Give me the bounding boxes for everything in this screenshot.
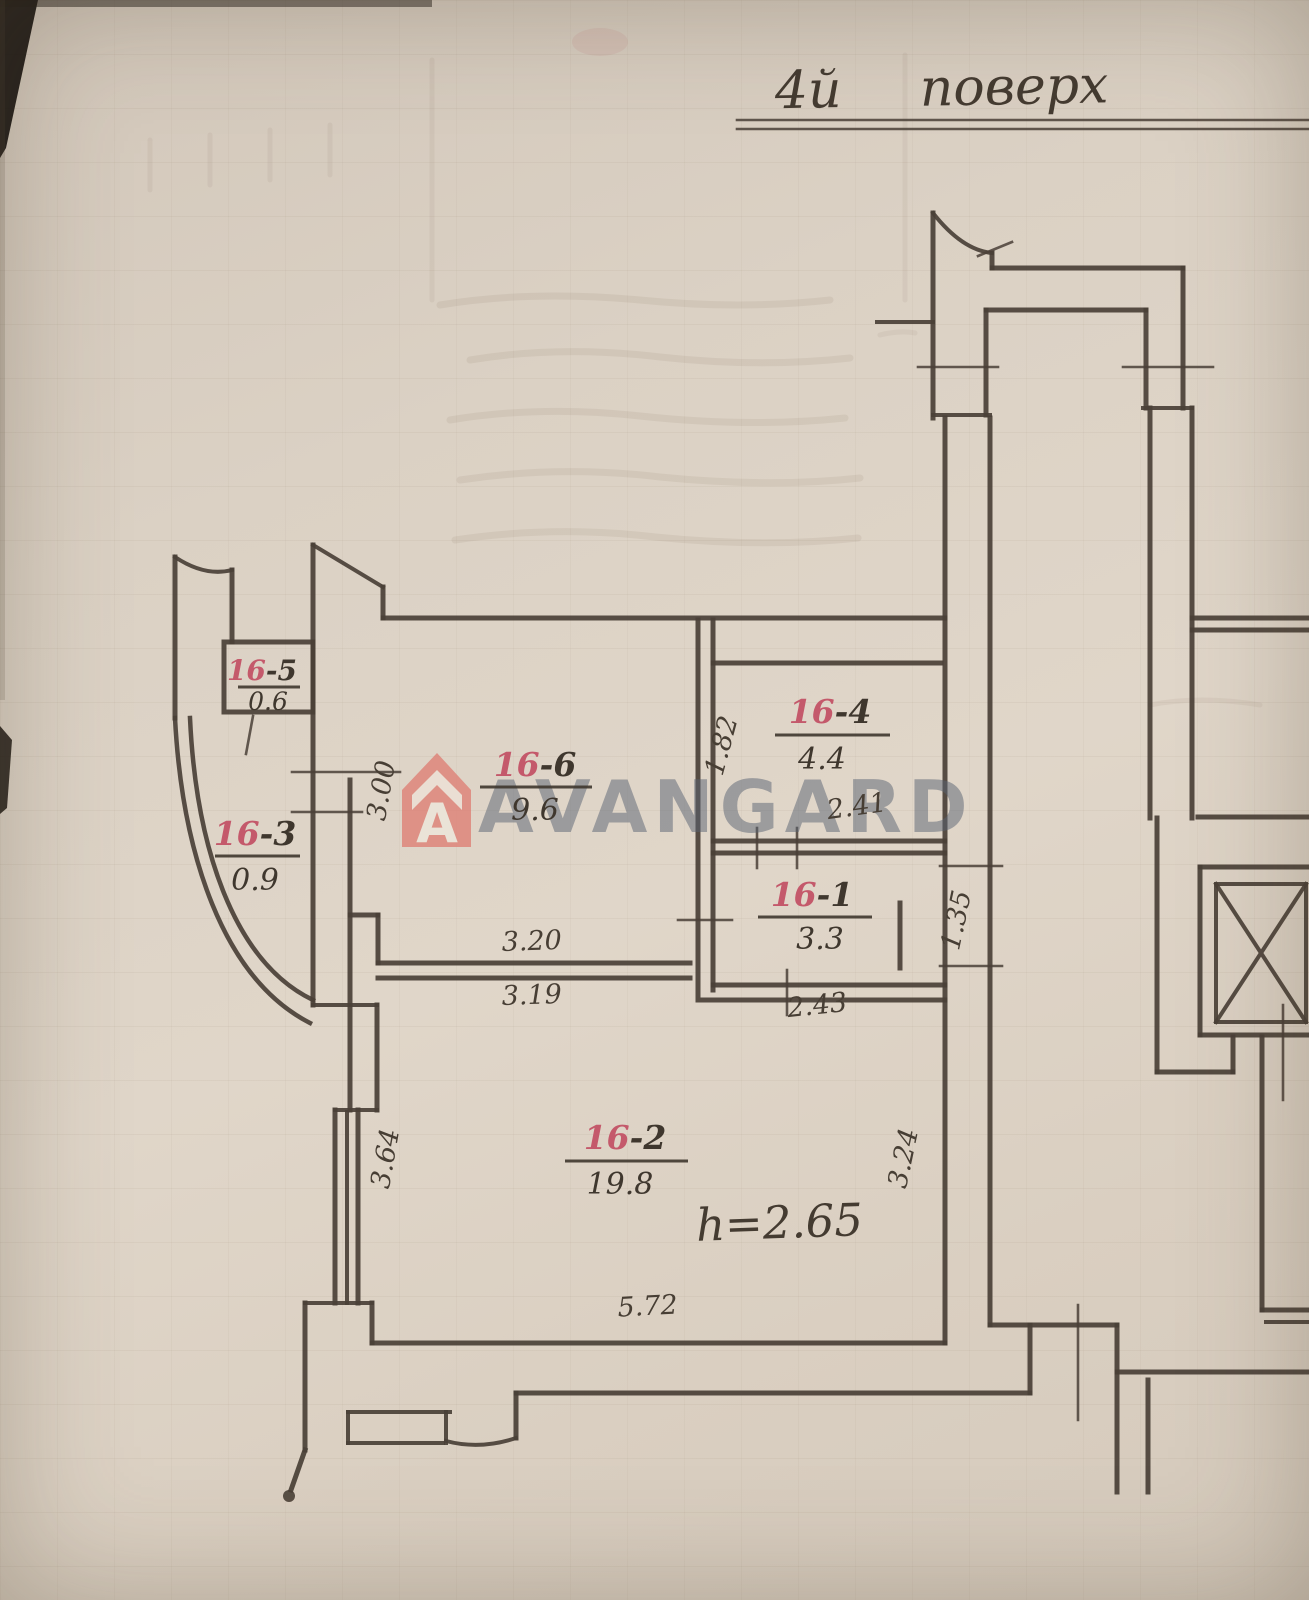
svg-text:16-3: 16-3	[214, 814, 297, 853]
room-16-4-suffix: -4	[835, 692, 872, 731]
wall-curl-mid	[313, 545, 383, 587]
room-16-5-number: 16	[227, 654, 266, 687]
room-16-2-number: 16	[584, 1118, 630, 1157]
svg-text:16-6: 16-6	[494, 745, 577, 784]
balcony-arc-inner	[190, 718, 313, 1000]
pink-smudge	[572, 28, 628, 56]
room-16-3-area: 0.9	[231, 863, 279, 898]
dim-room2-bottom: 5.72	[617, 1289, 679, 1323]
room-16-1-suffix: -1	[817, 875, 854, 914]
room-label-16-5: 16-5 0.6	[227, 654, 300, 716]
svg-text:16-1: 16-1	[771, 875, 854, 914]
room-16-4-number: 16	[789, 692, 835, 731]
title-word: поверх	[919, 55, 1108, 118]
photo-artifacts	[0, 0, 432, 814]
svg-text:16-2: 16-2	[584, 1118, 667, 1157]
room-16-6-area: 9.6	[511, 793, 559, 828]
room-16-4-area: 4.4	[797, 742, 846, 777]
dim-room1-bottom: 2.43	[785, 987, 849, 1024]
ink-blob	[283, 1490, 295, 1502]
svg-text:16-5: 16-5	[227, 654, 297, 687]
ceiling-height-note: h=2.65	[695, 1193, 864, 1252]
room-16-3-suffix: -3	[260, 814, 297, 853]
room-label-16-1: 16-1 3.3	[758, 875, 872, 957]
floor-plan-drawing: 4й поверх A AVANGARD 16-5 0.6 16-3 0.9 1…	[0, 0, 1309, 1600]
room-16-3-number: 16	[214, 814, 260, 853]
room-16-6-number: 16	[494, 745, 540, 784]
corridor-walls	[933, 213, 1309, 1492]
dim-mid-wall-top: 3.20	[501, 925, 562, 958]
dim-entry-opening: 1.35	[935, 888, 978, 953]
dim-mid-wall-bottom: 3.19	[501, 979, 562, 1012]
room-16-2-suffix: -2	[630, 1118, 667, 1157]
apartment-walls	[175, 322, 1030, 1502]
page-title: 4й поверх	[773, 55, 1108, 121]
watermark: A AVANGARD	[402, 753, 974, 855]
title-underline	[737, 120, 1309, 129]
watermark-logo-letter: A	[416, 792, 458, 855]
dim-room2-left: 3.64	[365, 1126, 406, 1191]
elevator-shaft	[1192, 618, 1309, 1322]
wall-curl-left	[175, 557, 232, 572]
dim-hall-left: 3.00	[361, 758, 402, 823]
room-16-5-area: 0.6	[248, 687, 288, 716]
room-16-5-suffix: -5	[266, 654, 297, 687]
elevator-shaft-cross-icon	[1216, 884, 1306, 1022]
svg-text:16-4: 16-4	[789, 692, 872, 731]
room-16-2-area: 19.8	[587, 1167, 654, 1202]
room-label-16-2: 16-2 19.8	[565, 1118, 688, 1202]
room-16-6-suffix: -6	[540, 745, 577, 784]
floor-plan-photo: 4й поверх A AVANGARD 16-5 0.6 16-3 0.9 1…	[0, 0, 1309, 1600]
room-16-1-number: 16	[771, 875, 817, 914]
wall-curl-corridor	[933, 213, 992, 253]
room-16-1-area: 3.3	[796, 922, 844, 957]
title-floor: 4й	[773, 60, 842, 121]
dim-room2-right: 3.24	[882, 1126, 925, 1191]
room-label-16-3: 16-3 0.9	[214, 814, 300, 898]
